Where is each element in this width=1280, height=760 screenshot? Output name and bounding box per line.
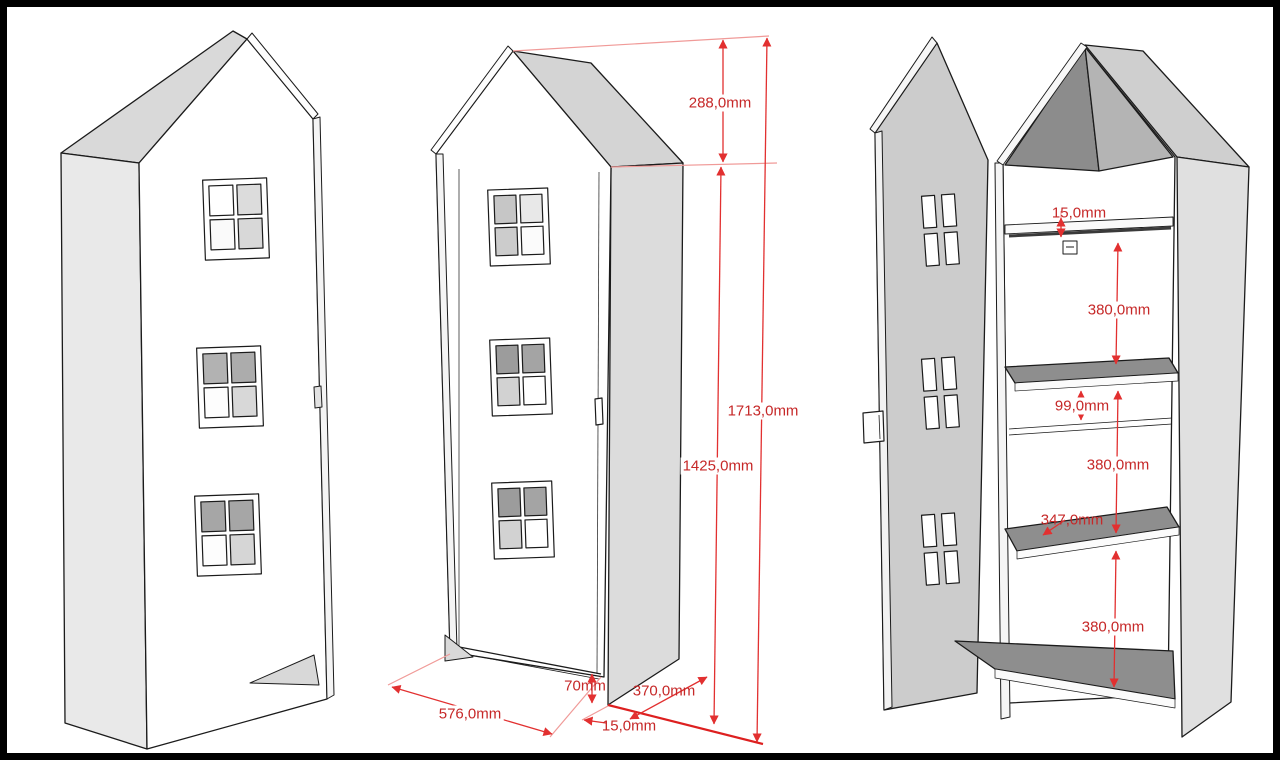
dim-label-roof-height: 288,0mm — [687, 95, 754, 112]
dim-line-total-height — [757, 38, 767, 742]
window-pane — [237, 184, 262, 215]
window-slot — [941, 513, 956, 546]
dim-label-body-height: 1425,0mm — [681, 458, 756, 475]
window-slot — [922, 195, 937, 228]
window-pane — [203, 353, 228, 384]
window-slot — [941, 357, 956, 390]
window — [492, 481, 555, 559]
wardrobe-view-closed — [61, 31, 334, 749]
right-side-panel — [1177, 157, 1249, 737]
window — [203, 178, 270, 260]
ext-line-width-left — [388, 654, 450, 685]
window-pane — [210, 219, 235, 250]
interior-roof-left — [1005, 47, 1099, 171]
window — [490, 338, 553, 416]
door-handle — [314, 386, 322, 408]
window-pane — [231, 352, 256, 383]
window-pane — [232, 386, 257, 417]
side-panel — [61, 153, 147, 749]
wardrobe-view-open — [863, 37, 1249, 737]
window-slot — [924, 233, 939, 266]
dim-label-top-section: 380,0mm — [1086, 302, 1153, 319]
ext-line-apex — [513, 36, 769, 51]
window-pane — [230, 534, 255, 565]
dim-label-total-height: 1713,0mm — [726, 403, 801, 420]
window-pane — [498, 488, 521, 517]
dim-label-side-thickness: 15,0mm — [602, 719, 656, 734]
window-pane — [202, 535, 227, 566]
window-slot — [924, 552, 939, 585]
window — [488, 188, 551, 266]
window-slot — [944, 232, 959, 265]
dim-label-depth: 370,0mm — [633, 684, 696, 699]
dim-label-width: 576,0mm — [437, 706, 504, 723]
window-pane — [521, 226, 544, 255]
door-handle-back — [863, 411, 884, 443]
window-pane — [238, 218, 263, 249]
window-pane — [204, 387, 229, 418]
window-pane — [497, 377, 520, 406]
window-pane — [524, 487, 547, 516]
window-pane — [523, 376, 546, 405]
dim-label-rail-gap: 99,0mm — [1053, 398, 1111, 415]
dim-label-top-shelf-thickness: 15,0mm — [1052, 206, 1106, 221]
window-pane — [494, 195, 517, 224]
dim-label-bottom-section: 380,0mm — [1080, 619, 1147, 636]
wardrobe-view-front — [431, 46, 683, 705]
window-slot — [922, 358, 937, 391]
window — [195, 494, 262, 576]
dim-label-middle-section: 380,0mm — [1085, 457, 1152, 474]
window — [197, 346, 264, 428]
window-pane — [525, 519, 548, 548]
door-handle — [595, 398, 603, 425]
window-slot — [924, 396, 939, 429]
window-slot — [922, 514, 937, 547]
window-slot — [944, 551, 959, 584]
window-pane — [499, 520, 522, 549]
window-pane — [522, 344, 545, 373]
dim-label-bottom-gap: 70mm — [564, 679, 606, 694]
window-pane — [520, 194, 543, 223]
drawing-sheet: 288,0mm 1713,0mm 1425,0mm 70mm 576,0mm 1… — [0, 0, 1280, 760]
technical-drawing — [7, 7, 1273, 753]
window-slot — [941, 194, 956, 227]
window-pane — [229, 500, 254, 531]
window-pane — [495, 227, 518, 256]
window-pane — [201, 501, 226, 532]
dim-label-shelf-depth: 347,0mm — [1041, 513, 1104, 528]
window-pane — [209, 185, 234, 216]
dim-line-body-height — [714, 167, 721, 724]
side-panel — [608, 163, 683, 705]
window-slot — [944, 395, 959, 428]
window-pane — [496, 345, 519, 374]
